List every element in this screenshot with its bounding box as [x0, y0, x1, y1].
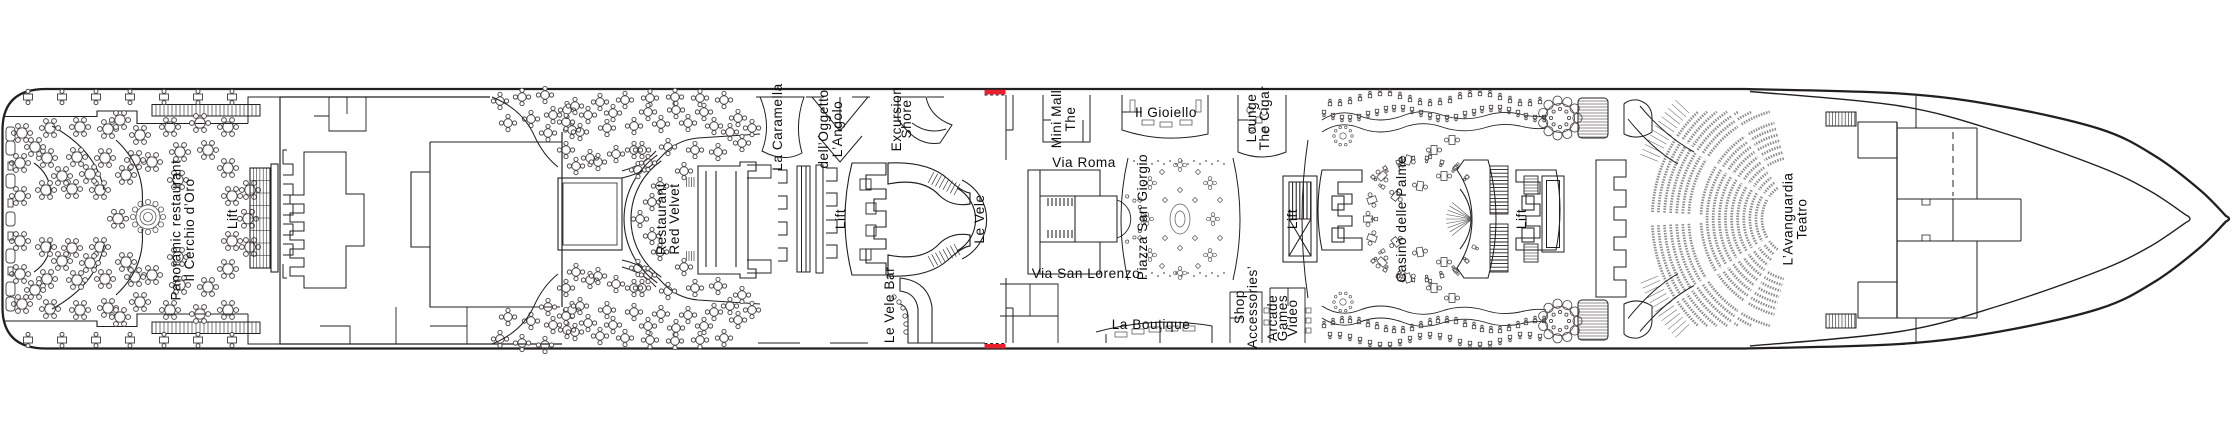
svg-text:The: The — [1063, 106, 1078, 131]
svg-text:Il Cerchio d’Oro: Il Cerchio d’Oro — [182, 178, 197, 281]
svg-text:Le Vele: Le Vele — [972, 194, 987, 243]
svg-text:L’Avanguardia: L’Avanguardia — [1781, 172, 1796, 265]
svg-text:dell’Oggetto: dell’Oggetto — [816, 89, 831, 168]
svg-text:Casinò delle Palme: Casinò delle Palme — [1394, 155, 1409, 282]
svg-text:Lift: Lift — [1514, 209, 1529, 229]
svg-text:La Boutique: La Boutique — [1112, 317, 1191, 332]
svg-text:La Caramella: La Caramella — [770, 83, 785, 170]
svg-text:Restaurant: Restaurant — [654, 183, 669, 255]
svg-text:Lift: Lift — [833, 209, 848, 229]
svg-text:Panoramic restaurant: Panoramic restaurant — [169, 160, 184, 301]
svg-text:Shop: Shop — [1232, 290, 1247, 324]
svg-text:Arcade: Arcade — [1265, 295, 1280, 341]
svg-text:The Cigar: The Cigar — [1257, 86, 1272, 151]
svg-text:Lift: Lift — [1285, 209, 1300, 229]
svg-text:Accessories’: Accessories’ — [1245, 266, 1260, 349]
svg-text:Lift: Lift — [225, 209, 240, 229]
svg-text:Lounge: Lounge — [1244, 94, 1259, 143]
svg-text:Il Gioiello: Il Gioiello — [1135, 105, 1197, 120]
svg-text:Le Vele Bar: Le Vele Bar — [882, 267, 897, 343]
svg-text:L’Angolo: L’Angolo — [830, 101, 845, 158]
svg-text:Mini Mall: Mini Mall — [1049, 90, 1064, 149]
svg-text:Red Velvet: Red Velvet — [667, 183, 682, 254]
svg-text:Via San Lorenzo: Via San Lorenzo — [1032, 266, 1141, 281]
svg-text:Via Roma: Via Roma — [1052, 155, 1116, 170]
svg-text:Excursion: Excursion — [889, 87, 904, 152]
svg-text:Piazza San Giorgio: Piazza San Giorgio — [1135, 154, 1150, 280]
svg-text:Teatro: Teatro — [1795, 198, 1810, 239]
